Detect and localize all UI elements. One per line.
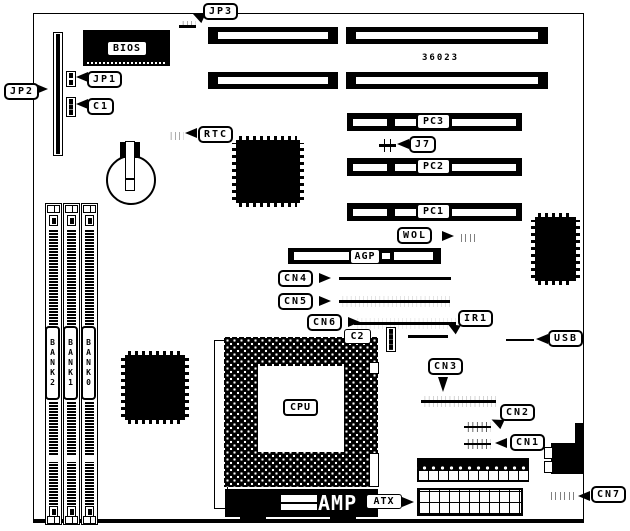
pc2-label: PC2 (417, 159, 450, 174)
cn4-pointer (319, 273, 331, 283)
wol-callout: WOL (397, 227, 432, 244)
motherboard-diagram: 36023 JP3 BIOS JP2 JP1 C1 RTC PC3 J7 (0, 0, 630, 531)
rtc-pointer (185, 128, 197, 138)
jp1-header (66, 71, 76, 87)
keyboard-connector-top (575, 423, 584, 445)
c2-label: C2 (344, 329, 371, 344)
cn1-header (462, 437, 493, 451)
ir1-callout: IR1 (458, 310, 493, 327)
c2-component (386, 327, 396, 352)
rtc-callout: RTC (198, 126, 233, 143)
isa-slot-window (218, 77, 328, 84)
bank0-label: BANK0 (81, 326, 96, 400)
wol-header (456, 233, 480, 243)
dimm-slot-bank2: BANK2 (45, 203, 62, 525)
retention-foot (330, 517, 356, 523)
pc1-label: PC1 (417, 204, 450, 219)
ir1-header (407, 330, 449, 339)
chipset-chip (125, 355, 185, 420)
cn1-callout: CN1 (510, 434, 545, 451)
rtc-chip (236, 140, 300, 203)
cn7-callout: CN7 (591, 486, 626, 503)
isa-slot-1-left (208, 27, 338, 44)
rtc-header (166, 131, 185, 141)
jp2-header-strip (53, 32, 63, 156)
cn2-header (462, 420, 493, 434)
dimm-slot-bank0: BANK0 (81, 203, 98, 525)
board-number: 36023 (422, 53, 459, 63)
connector-tab (544, 461, 553, 473)
cpu-label: CPU (283, 399, 318, 416)
isa-slot-2-right (346, 72, 548, 89)
isa-slot-2-left (208, 72, 338, 89)
cn2-callout: CN2 (500, 404, 535, 421)
bios-label: BIOS (107, 41, 147, 56)
jp3-callout: JP3 (203, 3, 238, 20)
jp3-header (178, 20, 197, 29)
isa-slot-window (356, 32, 538, 39)
jp1-callout: JP1 (87, 71, 122, 88)
pc3-label: PC3 (417, 114, 450, 129)
front-panel-header (417, 458, 529, 481)
battery-key (125, 141, 135, 191)
bank2-label: BANK2 (45, 326, 60, 400)
cn3-pointer (438, 377, 448, 392)
cn5-pointer (319, 296, 331, 306)
usb-header (504, 333, 536, 347)
connector-tab (544, 447, 553, 459)
cn3-header (419, 394, 498, 409)
atx-pointer (402, 497, 414, 507)
cn4-callout: CN4 (278, 270, 313, 287)
atx-callout: ATX (366, 494, 402, 509)
cn7-pointer (578, 491, 590, 501)
dimm-slot-bank1: BANK1 (63, 203, 80, 525)
atx-power-connector (417, 488, 523, 516)
bank1-label: BANK1 (63, 326, 78, 400)
isa-slot-window (218, 32, 328, 39)
cn7-header (546, 491, 579, 501)
io-chip (535, 217, 576, 281)
agp-label: AGP (350, 249, 380, 264)
cn6-pointer (348, 317, 360, 327)
cn3-callout: CN3 (428, 358, 463, 375)
j7-header (377, 137, 398, 154)
isa-slot-1-right (346, 27, 548, 44)
j7-pointer (397, 139, 409, 149)
cn1-pointer (495, 438, 507, 448)
cn5-header (337, 294, 452, 309)
usb-callout: USB (548, 330, 583, 347)
keyboard-connector (551, 443, 584, 474)
wol-pointer (442, 231, 454, 241)
c1-callout: C1 (87, 98, 114, 115)
j7-callout: J7 (409, 136, 436, 153)
cn6-callout: CN6 (307, 314, 342, 331)
bios-pins (87, 62, 166, 64)
c1-component (66, 97, 76, 117)
retention-foot (240, 517, 266, 523)
amp-label: AMP (318, 490, 357, 516)
isa-slot-window (356, 77, 538, 84)
jp2-callout: JP2 (4, 83, 39, 100)
cn4-header (337, 271, 453, 286)
cn5-callout: CN5 (278, 293, 313, 310)
usb-pointer (536, 334, 548, 344)
